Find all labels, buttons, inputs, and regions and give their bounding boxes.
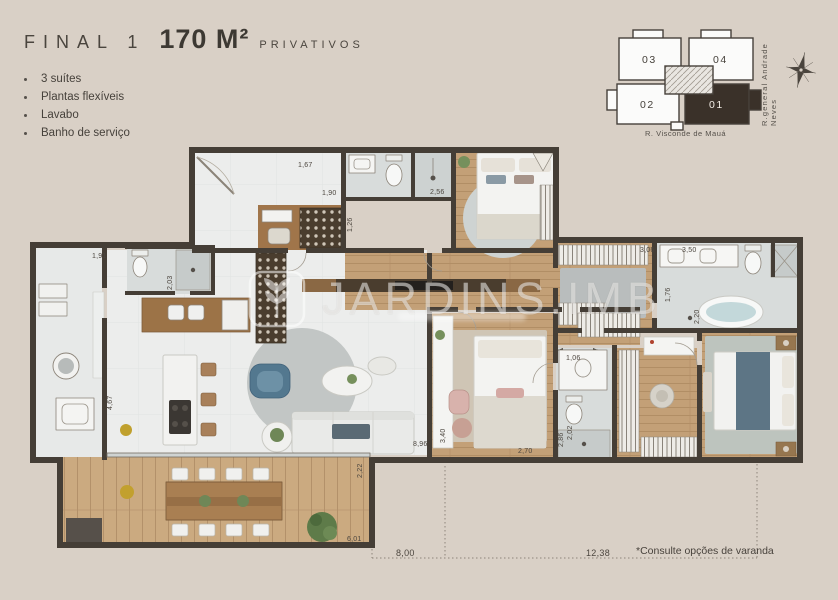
- bedroom1-dresser: [540, 185, 553, 240]
- shower-head-icon: [191, 268, 195, 272]
- blue-armchair-seat: [257, 371, 283, 392]
- bathroom1-toilet: [386, 164, 402, 186]
- dim-label: 2,86: [558, 433, 565, 447]
- dim-label: 1,26: [347, 218, 354, 232]
- sofa-throw: [332, 424, 370, 439]
- dim-label: 2,70: [518, 448, 532, 455]
- walkin-pouf: [656, 390, 668, 402]
- wall: [427, 253, 432, 283]
- dim-label: 2,20: [694, 310, 701, 324]
- wall: [652, 318, 657, 328]
- coffee-table: [322, 366, 372, 396]
- wall: [411, 153, 415, 198]
- varanda-footnote: *Consulte opções de varanda: [636, 545, 774, 557]
- wall: [553, 288, 558, 310]
- tv-console-wood: [302, 279, 336, 292]
- wall: [451, 150, 456, 253]
- wine-rack: [300, 208, 341, 248]
- dim-label: 1,90: [322, 190, 336, 197]
- dining-chair: [226, 524, 242, 536]
- dining-chair: [199, 468, 215, 480]
- yellow-pot: [120, 485, 134, 499]
- floorplan-drawing: 1,67 1,90 1,26 2,56 1,91 2,03 4,67 2,22 …: [0, 0, 838, 600]
- plant-icon: [458, 156, 470, 168]
- closet-wardrobe: [558, 245, 648, 265]
- bedroom1-cushion: [514, 175, 534, 184]
- dim-label: 2,03: [167, 276, 174, 290]
- dim-label: 1,76: [665, 288, 672, 302]
- kitchen-sink: [188, 305, 204, 320]
- kitchen-bottle-column: [256, 253, 286, 343]
- dim-label: 1,06: [566, 355, 580, 362]
- plant-icon: [435, 330, 445, 340]
- bedroom1-cushion: [486, 175, 506, 184]
- dining-chair: [226, 468, 242, 480]
- wall: [190, 291, 215, 295]
- corridor-wardrobe: [578, 313, 640, 337]
- bedroom2-cushion: [496, 388, 524, 398]
- master-pillow: [782, 394, 794, 426]
- plant-icon: [347, 374, 357, 384]
- island-stool: [201, 393, 216, 406]
- dim-label: 1,67: [298, 162, 312, 169]
- master-pillow: [782, 356, 794, 388]
- wall: [427, 307, 432, 460]
- varanda-width-left: 8,00: [396, 548, 415, 558]
- burner-icon: [172, 421, 178, 427]
- entry-chair: [268, 228, 290, 244]
- plant-icon: [270, 428, 284, 442]
- master-bed-blanket: [736, 352, 770, 430]
- dim-label: 4,67: [107, 396, 114, 410]
- dim-label: 3,40: [440, 429, 447, 443]
- burner-icon: [172, 405, 178, 411]
- tv-screen: [395, 281, 453, 290]
- dim-label: 6,01: [347, 536, 361, 543]
- kitchen-sink: [168, 305, 184, 320]
- wall: [211, 245, 215, 295]
- shower-head-icon: [688, 316, 692, 320]
- wall: [345, 197, 455, 201]
- service-toilet: [133, 257, 147, 277]
- bathroom1-toilet-tank: [386, 155, 402, 161]
- dining-chair: [253, 468, 269, 480]
- master-toilet: [745, 252, 761, 274]
- wall: [125, 291, 175, 295]
- cabinet-accent-dot: [650, 340, 654, 344]
- wall: [771, 243, 775, 277]
- cooktop: [169, 400, 191, 434]
- entry-console: [262, 210, 292, 222]
- dim-label: 2,02: [567, 426, 574, 440]
- laundry-shelf: [39, 302, 67, 316]
- bathroom2-toilet-tank: [566, 396, 582, 402]
- wall: [556, 328, 582, 333]
- bathroom1-vanity: [349, 155, 375, 173]
- tv-console-wood: [506, 279, 540, 292]
- bedroom2-armchair: [449, 390, 469, 414]
- master-bath-vanity: [660, 245, 738, 267]
- dim-label: 2,22: [357, 464, 364, 478]
- bedroom2-blanket: [474, 396, 546, 448]
- wall: [476, 307, 562, 312]
- shower-head-icon: [582, 442, 586, 446]
- sofa-back: [292, 412, 414, 420]
- plant-icon: [237, 495, 249, 507]
- bathtub-water: [706, 302, 756, 322]
- wall: [697, 365, 702, 460]
- dining-chair: [253, 524, 269, 536]
- terrace-planter: [66, 518, 102, 543]
- dim-label: 3,06: [640, 247, 654, 254]
- bedroom2-pillow: [478, 340, 542, 358]
- wall: [553, 390, 558, 460]
- dim-label: 8,96: [413, 441, 427, 448]
- wall: [102, 318, 107, 460]
- dining-chair: [172, 468, 188, 480]
- bedroom1-pillow: [481, 158, 515, 172]
- wall: [604, 328, 800, 333]
- burner-icon: [182, 405, 188, 411]
- dining-chair: [199, 524, 215, 536]
- burner-icon: [182, 421, 188, 427]
- laundry-shelf: [39, 284, 67, 298]
- island-stool: [201, 423, 216, 436]
- varanda-option-outline: [372, 464, 757, 558]
- dim-label: 2,56: [430, 189, 444, 196]
- dim-label: 3,50: [682, 247, 696, 254]
- terrace-plant-large: [323, 526, 337, 540]
- bedroom2-pouf: [452, 418, 472, 438]
- terrace-glass-door: [107, 453, 370, 457]
- refrigerator: [222, 300, 248, 330]
- wall: [553, 240, 558, 268]
- lamp-icon: [783, 340, 789, 346]
- dining-table-runner: [166, 497, 282, 506]
- wall: [697, 333, 702, 341]
- lamp-icon: [783, 446, 789, 452]
- plant-icon: [199, 495, 211, 507]
- wall: [306, 248, 424, 253]
- bathroom2-toilet: [566, 404, 582, 424]
- terrace-plant-large: [310, 514, 322, 526]
- wall: [580, 307, 640, 312]
- yellow-pot: [120, 424, 132, 436]
- service-toilet-tank: [132, 250, 148, 256]
- dining-chair: [172, 524, 188, 536]
- shower-head-icon: [431, 176, 436, 181]
- wall: [442, 248, 556, 253]
- master-toilet-tank: [745, 245, 761, 251]
- wall: [612, 345, 617, 460]
- walkin-wardrobe: [619, 350, 639, 452]
- walkin-wardrobe: [641, 437, 697, 457]
- wall: [430, 307, 458, 312]
- floorplan-sheet: { "header": { "final_label": "FINAL 1", …: [0, 0, 838, 600]
- wall: [553, 313, 558, 363]
- master-bench: [703, 372, 712, 412]
- dim-label: 1,91: [92, 253, 106, 260]
- coffee-table-small: [368, 357, 396, 375]
- island-stool: [201, 363, 216, 376]
- varanda-width-right: 12,38: [586, 548, 610, 558]
- washing-machine-drum: [58, 358, 74, 374]
